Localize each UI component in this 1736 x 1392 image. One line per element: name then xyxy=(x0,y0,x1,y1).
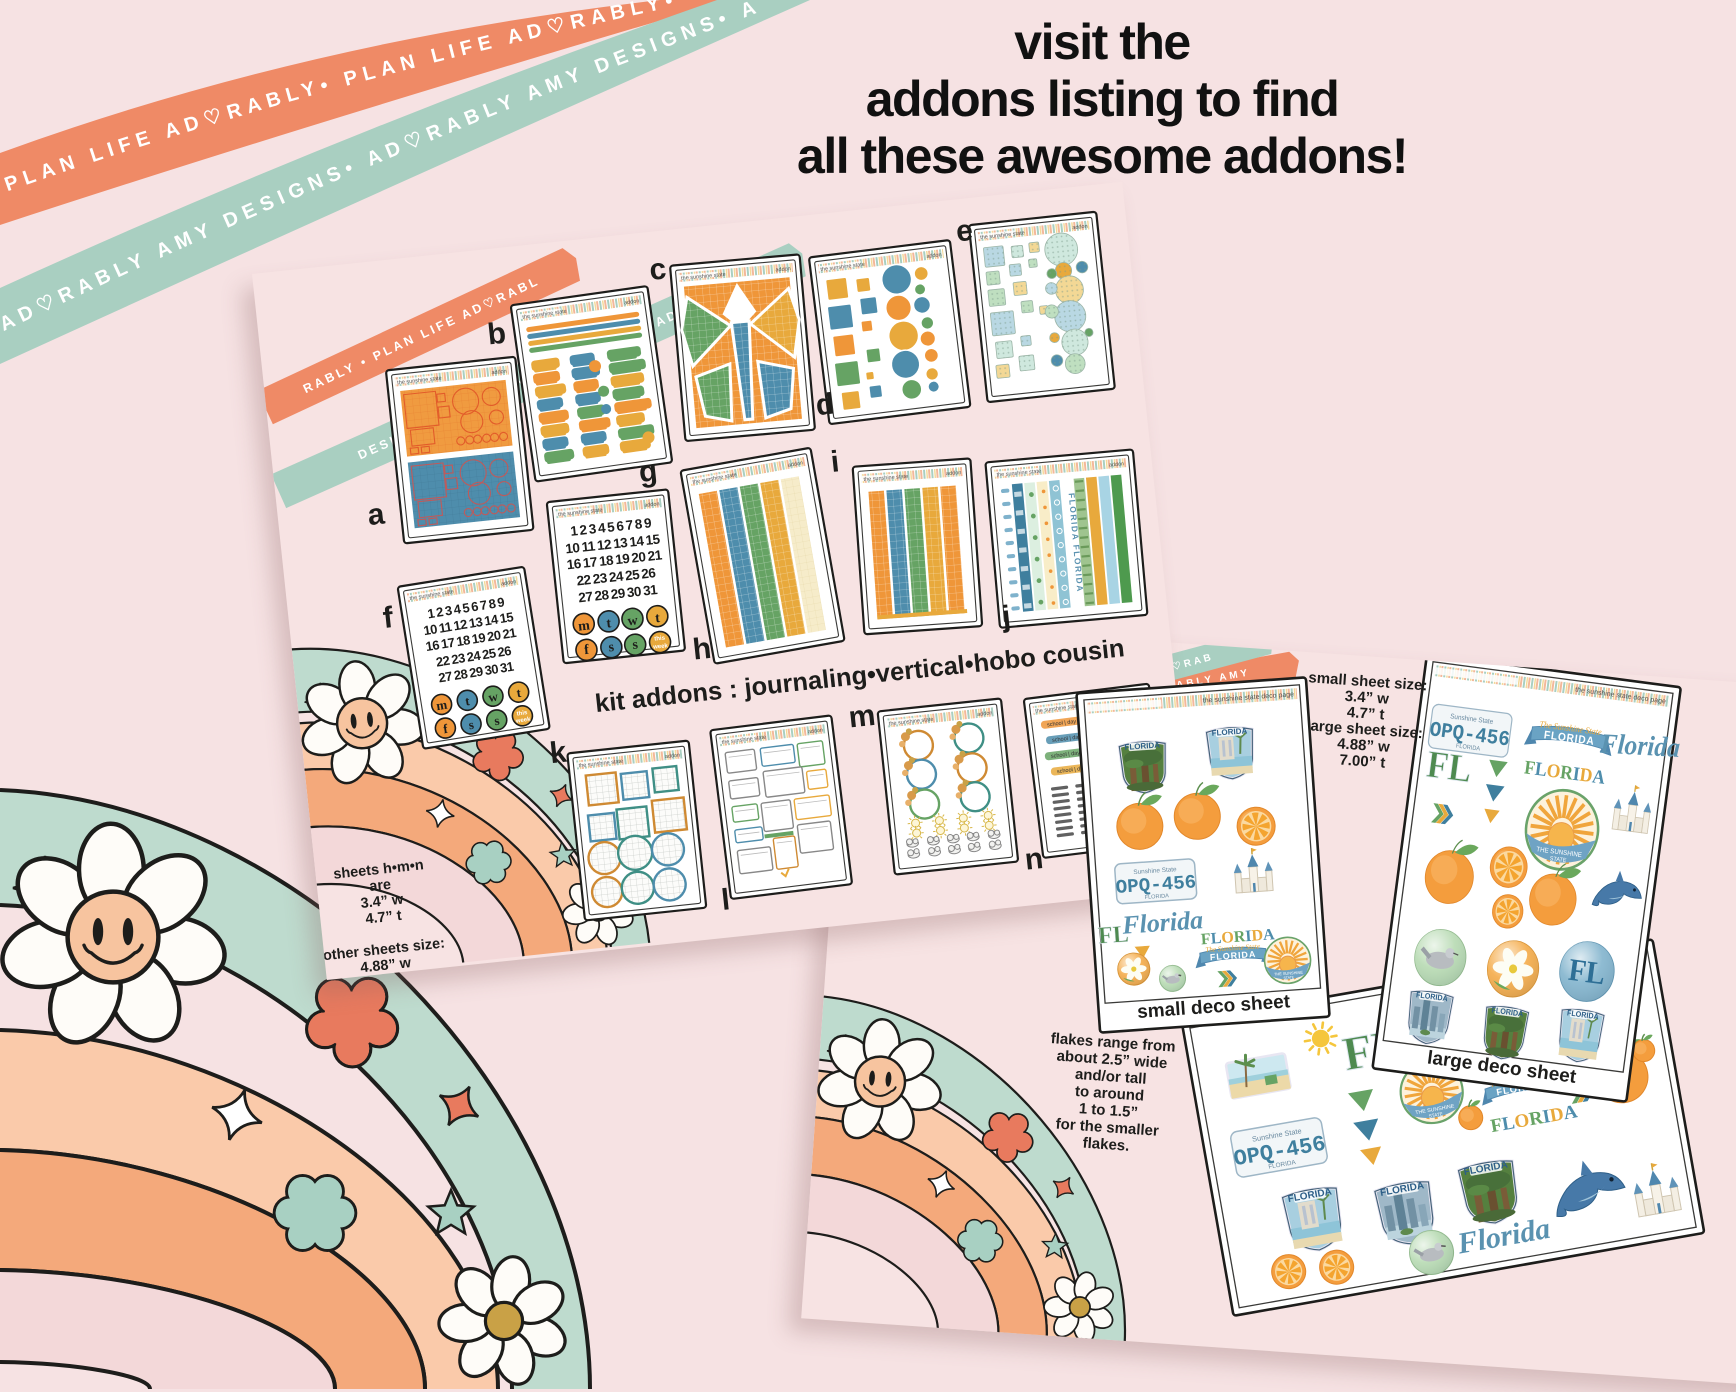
svg-text:FL: FL xyxy=(1424,743,1474,791)
svg-text:g: g xyxy=(637,454,659,489)
svg-text:f: f xyxy=(381,601,395,635)
svg-text:m: m xyxy=(577,618,591,634)
svg-text:Florida: Florida xyxy=(1120,905,1204,940)
svg-text:c: c xyxy=(648,252,668,287)
svg-text:d: d xyxy=(814,387,836,422)
svg-text:Florida: Florida xyxy=(1599,728,1682,764)
svg-text:i: i xyxy=(829,445,841,479)
svg-text:b: b xyxy=(486,317,508,352)
svg-text:e: e xyxy=(954,214,974,249)
svg-text:STATE: STATE xyxy=(1283,975,1294,980)
svg-text:this: this xyxy=(654,635,666,642)
svg-text:m: m xyxy=(847,699,877,735)
svg-text:a: a xyxy=(366,497,386,532)
svg-text:addon: addon xyxy=(946,470,962,477)
svg-text:n: n xyxy=(1023,842,1045,877)
svg-text:FL: FL xyxy=(1097,921,1129,949)
svg-text:h: h xyxy=(691,632,713,667)
svg-text:FL: FL xyxy=(1567,953,1608,992)
svg-text:flakes range fromabout 2.5” wi: flakes range fromabout 2.5” wideand/or t… xyxy=(1043,1030,1176,1157)
svg-text:k: k xyxy=(548,736,568,771)
